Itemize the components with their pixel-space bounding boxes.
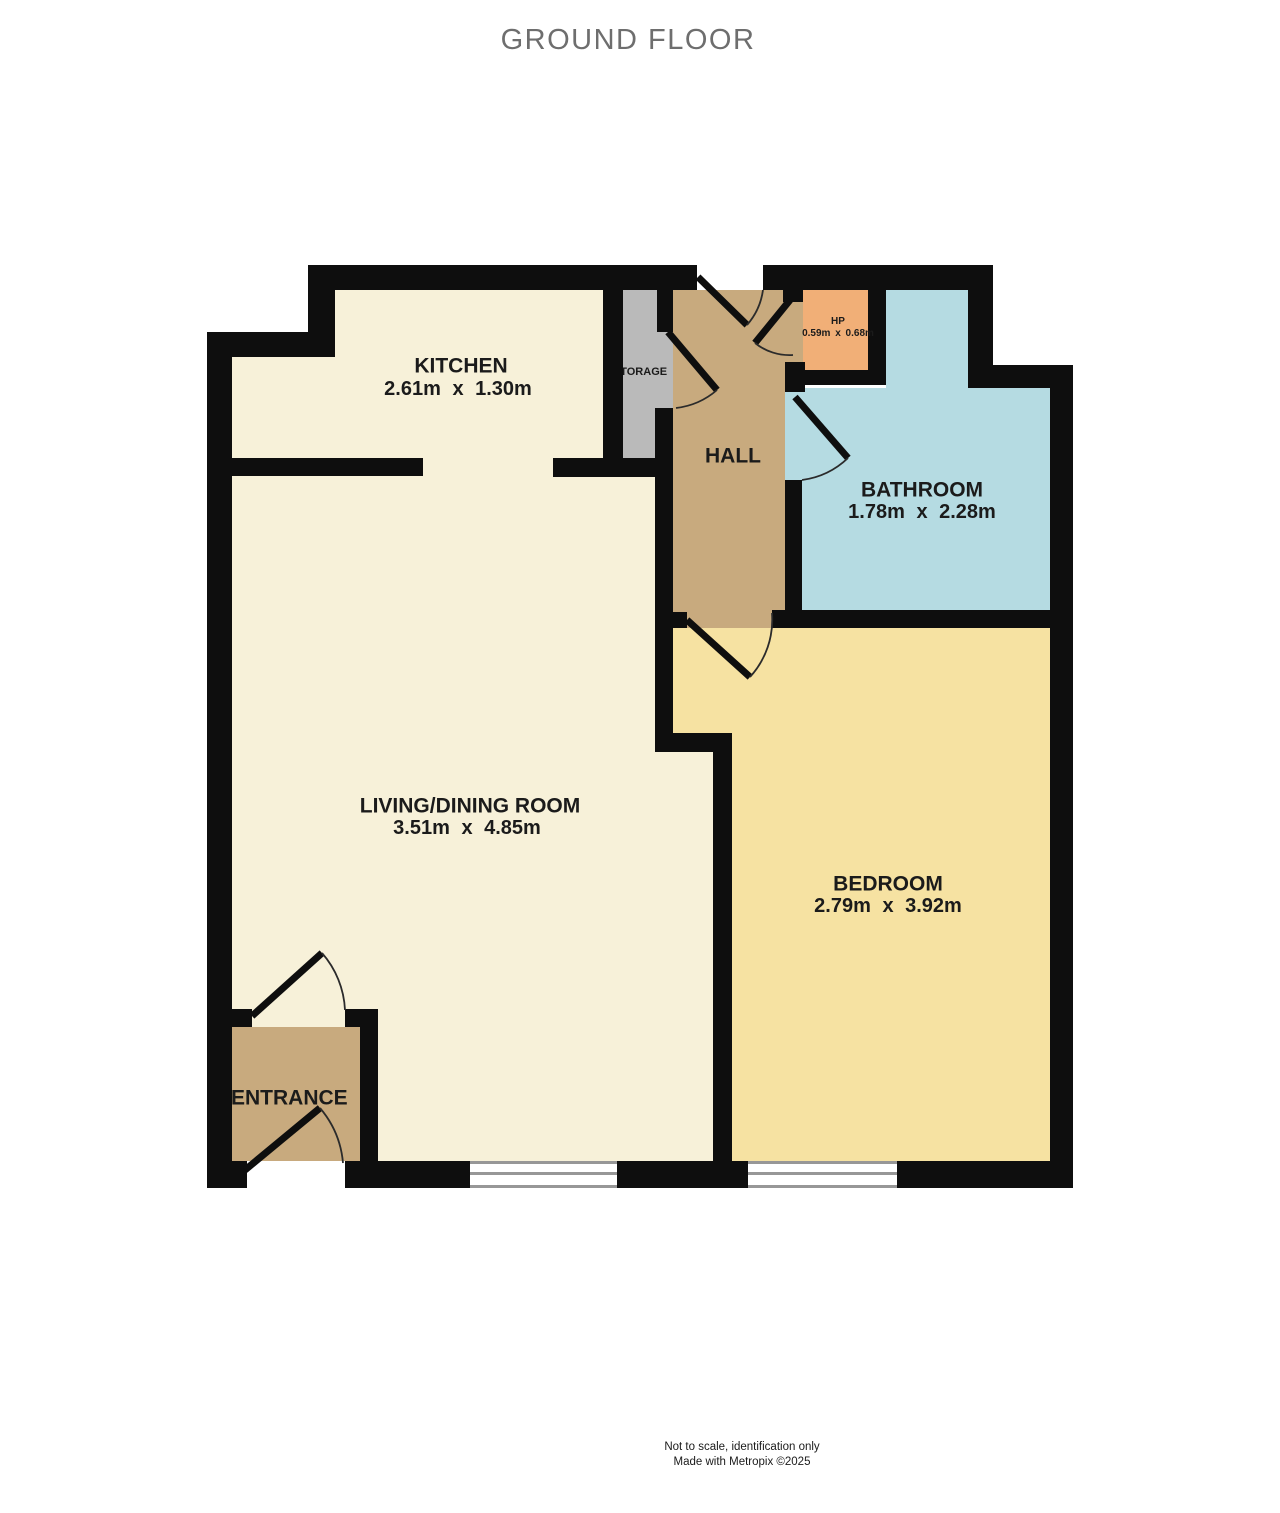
living-room-label: LIVING/DINING ROOM	[360, 796, 581, 817]
disclaimer-line: Not to scale, identification only	[664, 1440, 819, 1455]
kitchen-dimensions: 2.61m x 1.30m	[384, 379, 532, 399]
page-title: GROUND FLOOR	[501, 24, 756, 57]
hp-label: HP	[831, 317, 845, 327]
hall-label: HALL	[705, 446, 761, 467]
credit-line: Made with Metropix ©2025	[664, 1455, 819, 1470]
door-symbols-layer	[0, 0, 1280, 1513]
entrance-label: ENTRANCE	[231, 1088, 348, 1109]
kitchen-label: KITCHEN	[414, 356, 507, 377]
storage-door	[668, 332, 717, 408]
bedroom-door	[687, 613, 772, 677]
hall-entry-door	[698, 277, 763, 325]
bedroom-label: BEDROOM	[833, 874, 943, 895]
bedroom-dimensions: 2.79m x 3.92m	[814, 896, 962, 916]
bathroom-door	[795, 397, 848, 480]
entrance-front-door	[245, 1108, 343, 1170]
disclaimer-footer: Not to scale, identification only Made w…	[664, 1440, 819, 1470]
bathroom-dimensions: 1.78m x 2.28m	[848, 502, 996, 522]
hp-cupboard-door	[755, 300, 793, 355]
living-room-dimensions: 3.51m x 4.85m	[393, 818, 541, 838]
bathroom-label: BATHROOM	[861, 480, 983, 501]
hp-dimensions: 0.59m x 0.68m	[802, 329, 874, 339]
entrance-inner-door	[252, 953, 345, 1016]
floorplan-canvas: GROUND FLOOR STORAGE	[0, 0, 1280, 1513]
